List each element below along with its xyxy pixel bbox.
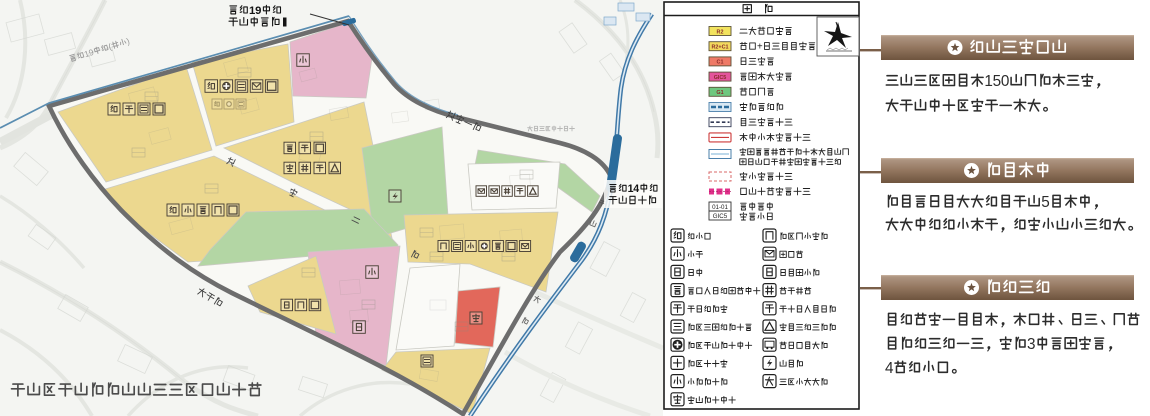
- svg-text:0: 0: [1001, 73, 1010, 90]
- svg-text:5: 5: [1041, 194, 1050, 211]
- svg-text:G1: G1: [716, 90, 723, 96]
- svg-text:R2: R2: [717, 29, 724, 35]
- svg-text:GIC5: GIC5: [713, 213, 728, 220]
- svg-text:4: 4: [885, 360, 894, 377]
- svg-text:R2+C1: R2+C1: [712, 45, 729, 51]
- svg-text:GIC5: GIC5: [714, 75, 727, 81]
- svg-text:4: 4: [633, 183, 639, 195]
- svg-text:9: 9: [255, 5, 261, 17]
- svg-text:01-01: 01-01: [712, 204, 728, 211]
- svg-text:C1: C1: [717, 60, 724, 66]
- svg-text:3: 3: [1027, 336, 1036, 353]
- svg-text:5: 5: [993, 73, 1002, 90]
- svg-text:+: +: [757, 42, 763, 53]
